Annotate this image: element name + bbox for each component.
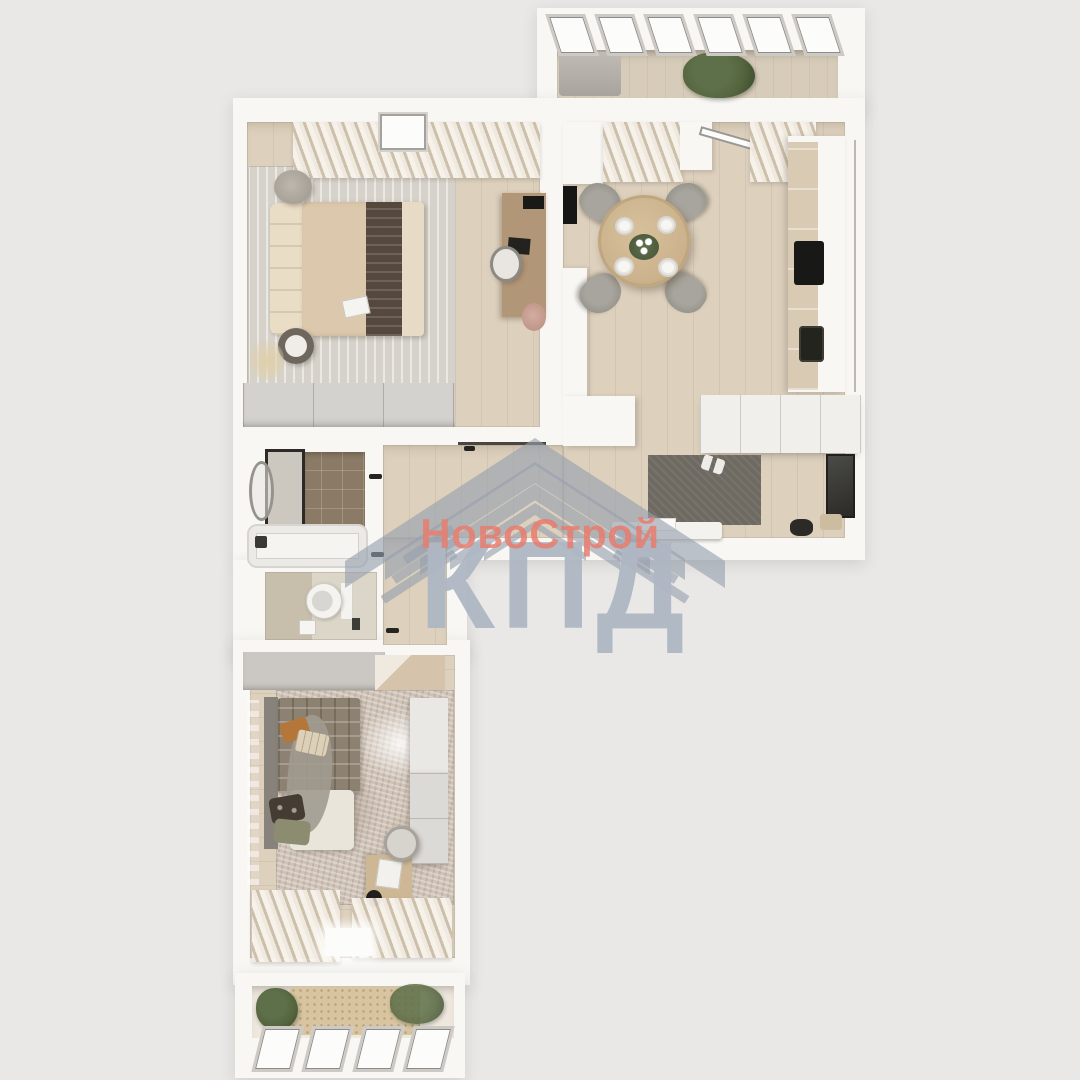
toilet-brush	[352, 618, 360, 630]
dark-vessel	[790, 519, 813, 536]
flower-vase	[629, 234, 659, 260]
bed-folded-blanket	[402, 202, 424, 336]
door-handle	[464, 446, 475, 451]
balcony-plant-left	[256, 988, 298, 1030]
plate	[615, 217, 634, 235]
window-pane	[251, 1026, 304, 1072]
bathroom-tile-floor	[300, 452, 365, 528]
bedroom1-wardrobe	[243, 383, 455, 427]
window-pane	[693, 14, 747, 56]
window-pane	[594, 14, 648, 56]
window-pane	[791, 14, 845, 56]
cooktop	[794, 241, 824, 285]
waste-bin	[299, 620, 316, 635]
towels	[638, 518, 676, 531]
open-door-leaf	[458, 442, 546, 445]
pouf	[274, 170, 312, 204]
sheer-curtain	[247, 700, 259, 885]
plate	[657, 216, 676, 234]
bath-faucet	[255, 536, 267, 548]
plate	[658, 258, 678, 277]
window-pane	[302, 1026, 355, 1072]
door-handle	[371, 552, 384, 557]
potted-plant	[522, 303, 546, 331]
desk-chair	[490, 246, 522, 282]
window-pane	[402, 1026, 455, 1072]
top-balcony-bench	[559, 52, 621, 96]
tv-screen	[523, 196, 544, 209]
bedroom1-window	[378, 112, 428, 152]
apartment-floorplan-3d-render: КПД НовоСтрой	[0, 0, 1080, 1080]
oval-mirror	[249, 461, 274, 521]
corridor-floor	[383, 445, 563, 538]
window-pane	[644, 14, 698, 56]
bedroom2-window	[325, 928, 371, 956]
hall-mirror	[826, 454, 855, 518]
pillow-olive	[273, 818, 311, 846]
toilet	[306, 583, 342, 619]
top-balcony-window-row	[552, 14, 838, 56]
kitchen-tv	[563, 186, 577, 224]
window-pane	[352, 1026, 405, 1072]
bottom-balcony-window-row	[257, 1026, 449, 1072]
kitchen-window-sill	[563, 122, 603, 184]
window-pane	[545, 14, 599, 56]
dried-plant	[250, 340, 284, 380]
desk-papers	[375, 858, 403, 889]
kitchen-curtain-left	[603, 122, 683, 182]
bed-runner-blanket	[366, 202, 402, 336]
bedroom2-chair	[384, 826, 419, 861]
bedroom2-shelf	[410, 698, 448, 772]
kitchen-wall-edge	[854, 140, 856, 392]
balcony-plant-right	[390, 984, 444, 1024]
door-handle	[369, 474, 382, 479]
top-balcony-plant	[683, 52, 755, 98]
hall-wall-stub	[563, 396, 635, 446]
basket	[820, 514, 842, 530]
hall-wardrobe	[700, 395, 861, 453]
kitchen-sink	[799, 326, 824, 362]
bedroom2-cabinet	[243, 652, 385, 690]
plate	[614, 257, 634, 276]
door-handle	[386, 628, 399, 633]
window-pane	[742, 14, 796, 56]
